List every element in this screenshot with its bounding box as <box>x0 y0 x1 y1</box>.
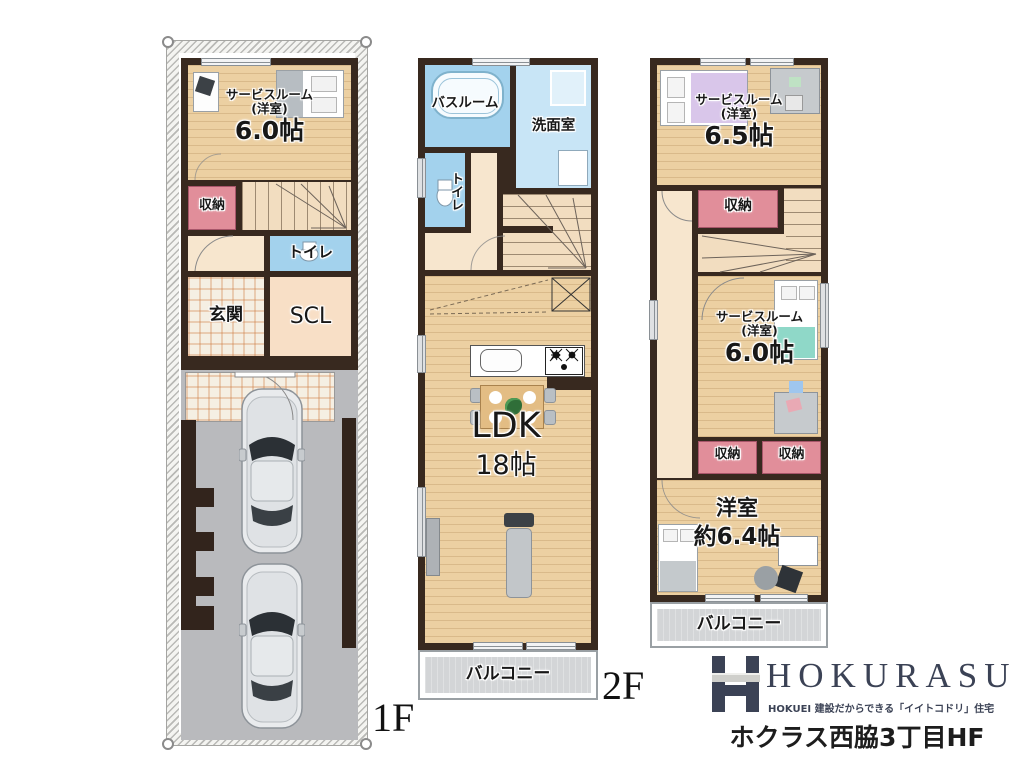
window-icon <box>705 594 755 602</box>
garage-wall-tooth <box>181 488 214 507</box>
garage-wall-left <box>181 420 196 630</box>
stair-wall-stub <box>503 226 553 233</box>
floor-2f-plan: バスルーム 洗面室 トイレ LDK 18帖 バルコニー <box>418 58 598 700</box>
plate-icon <box>523 391 536 404</box>
bed-blanket <box>660 561 696 591</box>
bed-blanket <box>777 327 815 358</box>
boundary-marker-icon <box>162 738 174 750</box>
window-icon <box>649 300 658 340</box>
pillow-icon <box>311 97 337 113</box>
entrance-porch <box>185 372 335 422</box>
window-icon <box>760 594 808 602</box>
room-storage-b-3f <box>698 441 757 474</box>
hokurasu-h-mark-icon <box>712 656 760 712</box>
plant-icon <box>505 398 522 415</box>
window-icon <box>820 283 829 348</box>
desk-icon <box>774 392 818 434</box>
window-icon <box>417 158 426 198</box>
hall-3f <box>657 191 692 478</box>
garage-area <box>181 370 358 740</box>
floor-label-1f: 1F <box>372 694 414 741</box>
window-icon <box>750 58 794 66</box>
garage-wall-tooth <box>181 532 214 551</box>
pillow-icon <box>311 76 337 92</box>
bathtub-icon <box>431 71 504 119</box>
hall-2f-lower <box>425 233 497 270</box>
floorplan-canvas: サービスルーム (洋室) 6.0帖 収納 トイレ 玄関 SCL 1F <box>0 0 1024 769</box>
chair-icon <box>544 410 556 425</box>
bathtub-inner <box>438 78 499 114</box>
desk-item <box>786 397 802 412</box>
room-entrance-1f <box>188 277 264 356</box>
building-3f: サービスルーム (洋室) 6.5帖 収納 サービスルーム (洋室) 6.0帖 収… <box>650 58 828 602</box>
room-storage-a-3f <box>698 190 778 228</box>
stairs-3f-upper <box>784 188 821 272</box>
room-toilet-2f <box>425 153 465 227</box>
plate-icon <box>489 411 502 424</box>
rug-icon <box>754 566 778 590</box>
project-name: ホクラス西脇3丁目HF <box>712 718 1002 754</box>
bed-blanket <box>691 73 747 123</box>
brand-tagline: HOKUEI 建設だからできる「イイトコドリ」住宅 <box>768 700 994 715</box>
window-icon <box>417 335 426 373</box>
pillow-icon <box>799 286 815 300</box>
room-scl-1f <box>270 277 351 356</box>
pillow-icon <box>781 286 797 300</box>
room-storage-1f <box>188 186 236 230</box>
desk-item <box>789 381 803 393</box>
washer-icon <box>550 70 586 106</box>
tv-icon <box>504 513 534 527</box>
window-icon <box>472 58 530 66</box>
desk-plant <box>789 77 801 87</box>
bed-icon <box>660 70 748 126</box>
balcony-2f: バルコニー <box>418 650 598 700</box>
balcony-label-2f: バルコニー <box>466 665 551 685</box>
stairs-3f-winder <box>698 234 786 272</box>
kitchen-sink-icon <box>480 349 522 372</box>
vanity-icon <box>558 150 588 186</box>
window-icon <box>526 642 576 650</box>
builder-logo-block: HOKURASU HOKUEI 建設だからできる「イイトコドリ」住宅 ホクラス西… <box>712 650 1014 760</box>
bed-icon <box>658 524 698 592</box>
floor-label-2f: 2F <box>602 662 644 709</box>
garage-wall-tooth <box>181 577 214 596</box>
stairs-1f <box>242 182 351 230</box>
pillow-icon <box>680 529 695 542</box>
brand-name: HOKURASU <box>766 656 1016 696</box>
building-2f: バスルーム 洗面室 トイレ LDK 18帖 <box>418 58 598 650</box>
balcony-3f: バルコニー <box>650 602 828 648</box>
window-icon <box>201 58 271 66</box>
window-icon <box>473 642 523 650</box>
floor-1f-plan: サービスルーム (洋室) 6.0帖 収納 トイレ 玄関 SCL <box>166 40 368 746</box>
garage-wall-right <box>342 418 356 648</box>
chair-icon <box>544 388 556 403</box>
room-storage-c-3f <box>762 441 821 474</box>
plate-icon <box>523 411 536 424</box>
bed-icon <box>774 280 818 360</box>
dining-table-icon <box>480 385 544 429</box>
pillow-icon <box>667 102 685 123</box>
window-icon <box>700 58 746 66</box>
tv-board-icon <box>426 518 440 576</box>
room-toilet-1f <box>270 236 351 271</box>
pillow-icon <box>663 529 678 542</box>
pillow-icon <box>667 77 685 98</box>
balcony-label-3f: バルコニー <box>697 615 782 635</box>
floor-3f-plan: サービスルーム (洋室) 6.5帖 収納 サービスルーム (洋室) 6.0帖 収… <box>650 58 828 648</box>
boundary-marker-icon <box>360 36 372 48</box>
bed-icon <box>276 70 344 118</box>
window-icon <box>417 487 426 557</box>
garage-wall-block <box>181 606 214 630</box>
chair-icon <box>785 95 803 111</box>
desk-icon <box>778 536 818 566</box>
hall-1f <box>188 236 264 271</box>
plate-icon <box>489 391 502 404</box>
bed-blanket <box>277 71 303 117</box>
building-1f: サービスルーム (洋室) 6.0帖 収納 トイレ 玄関 SCL <box>181 58 358 370</box>
boundary-marker-icon <box>162 36 174 48</box>
boundary-marker-icon <box>360 738 372 750</box>
sofa-icon <box>506 528 532 598</box>
desk-icon <box>770 68 820 114</box>
